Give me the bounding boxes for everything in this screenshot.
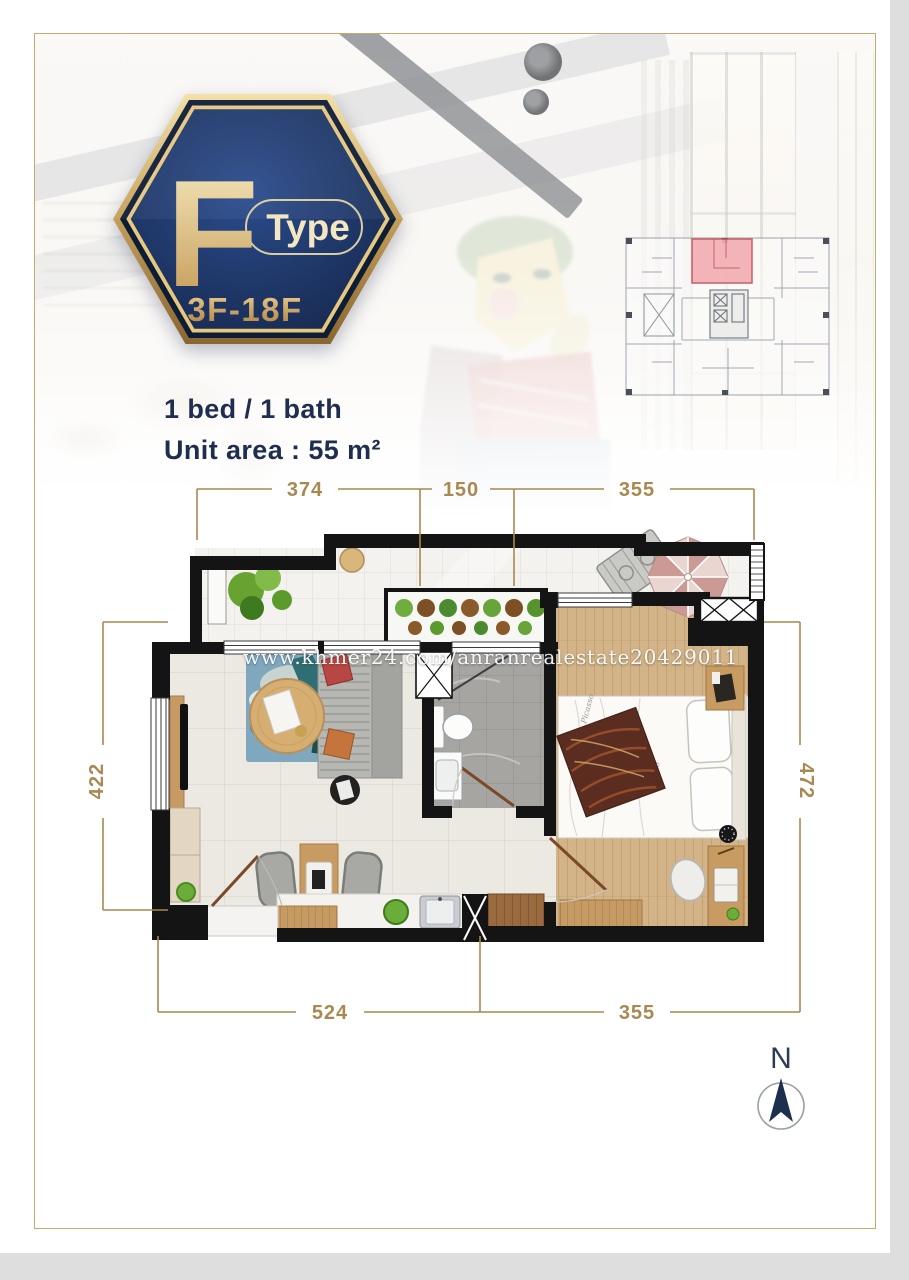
floorplan-poster: F Type 3F-18F 1 bed / 1 bath Unit area :… xyxy=(0,0,909,1280)
dim-top-3: 355 xyxy=(619,479,655,501)
bedroom-window xyxy=(558,593,632,607)
tv xyxy=(180,704,188,790)
compass-label: N xyxy=(770,1042,792,1075)
left-window xyxy=(151,698,169,810)
nightstand xyxy=(706,666,744,710)
decor-plate xyxy=(719,825,737,843)
dim-top-2: 150 xyxy=(443,479,479,501)
potted-plant xyxy=(177,883,195,901)
kitchen-sink xyxy=(420,896,460,928)
dim-left: 422 xyxy=(86,763,108,799)
louver-panel xyxy=(750,544,764,600)
bed: Picasso Picasso Picasso xyxy=(557,693,748,840)
round-stool xyxy=(340,548,364,572)
dim-top-1: 374 xyxy=(287,479,323,501)
planter-box xyxy=(386,590,546,644)
service-shaft xyxy=(462,894,488,942)
dim-right: 472 xyxy=(795,763,817,799)
kitchen-counter xyxy=(277,894,463,930)
desk xyxy=(708,846,744,934)
sideboard xyxy=(170,808,200,902)
dim-bottom-2: 355 xyxy=(619,1002,655,1024)
dim-bottom-1: 524 xyxy=(312,1002,348,1024)
cushion xyxy=(324,729,355,760)
coffee-table xyxy=(250,679,324,753)
white-planter xyxy=(208,562,226,624)
headboard xyxy=(732,694,746,840)
north-compass: N xyxy=(758,1042,804,1129)
counter-plant xyxy=(384,900,408,924)
vanity xyxy=(432,752,462,800)
watermark: www.khmer24.com/anranrealestate20429011 xyxy=(243,645,683,669)
floor-plan: Picasso Picasso Picasso xyxy=(0,0,909,1280)
sofa xyxy=(318,650,402,778)
side-table xyxy=(330,775,360,805)
